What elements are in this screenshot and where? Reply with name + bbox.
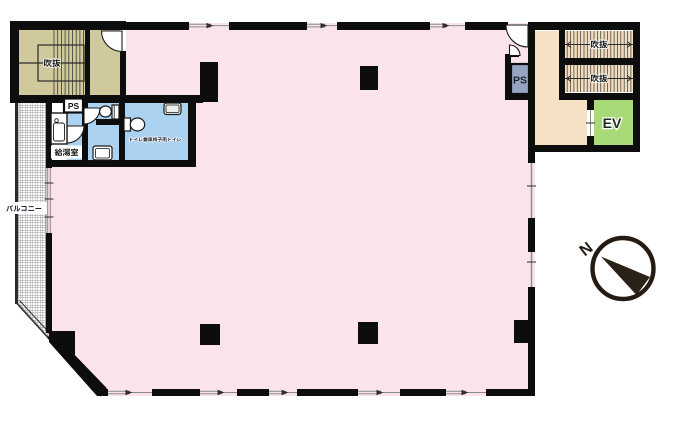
svg-text:EV: EV: [603, 115, 622, 131]
svg-text:PS: PS: [68, 101, 80, 111]
svg-text:PS: PS: [513, 75, 527, 87]
